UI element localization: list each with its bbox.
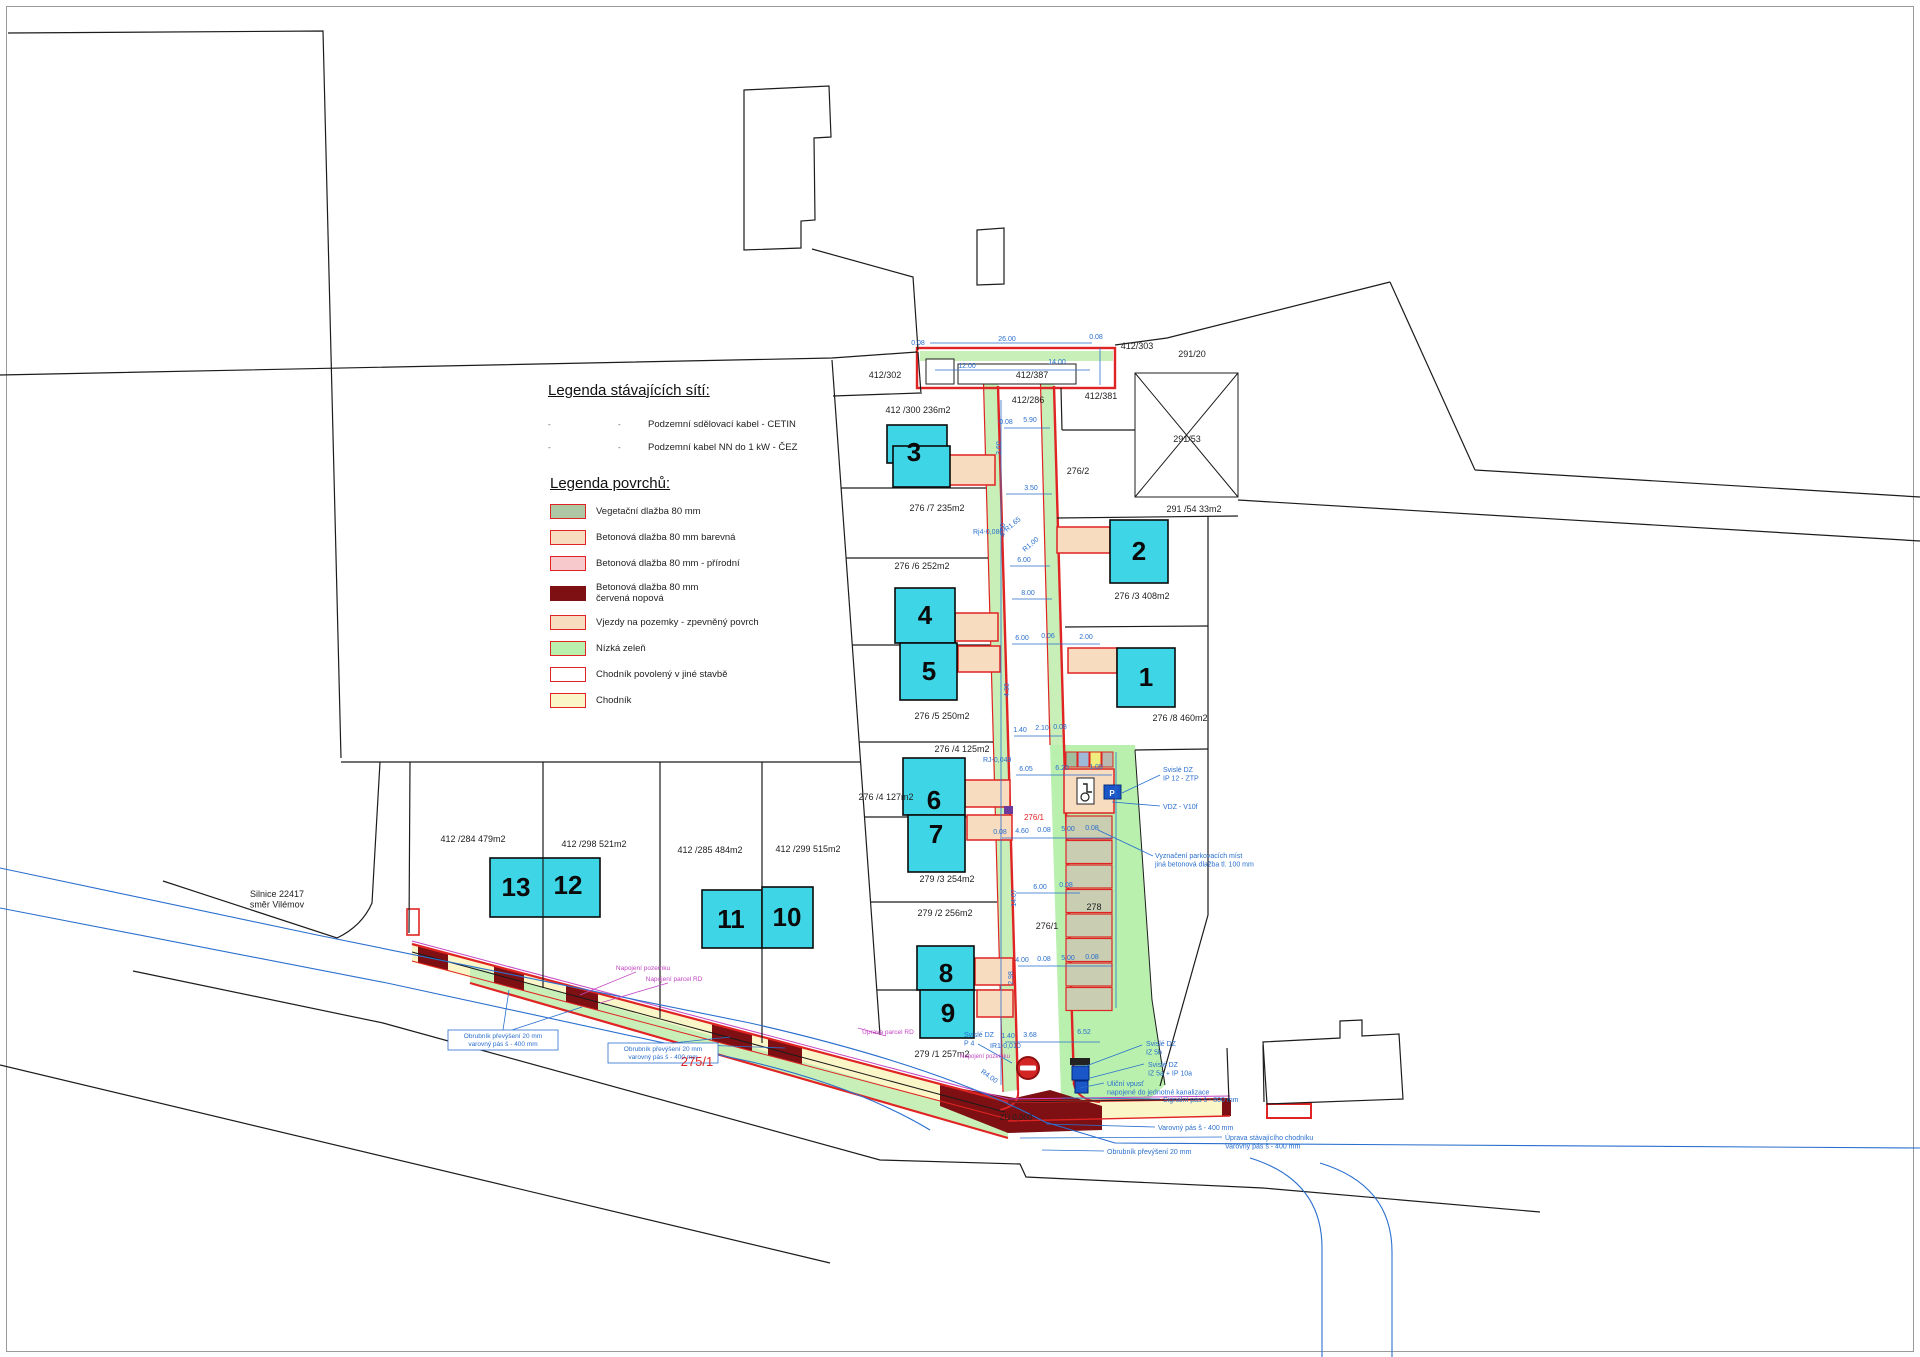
legend-surface-item: Betonová dlažba 80 mm - přírodní [548,556,838,571]
map-label: 0.08 [1037,827,1051,834]
map-label: 276 /5 250m2 [914,711,969,721]
inlet-grate-icon [1070,1058,1090,1065]
map-label: Obrubník převýšení 20 mmvarovný pás š - … [624,1046,702,1061]
map-label: 0.08 [1085,825,1099,832]
map-label: VDZ - V10f [1163,804,1198,811]
map-label: 2.98 [1008,971,1015,985]
building-number-6: 6 [927,785,941,815]
map-label: 0.08 [1037,956,1051,963]
map-label: ZÚ 0,000 [1000,1113,1033,1122]
legend-surface-item: Chodník [548,693,838,708]
map-label: 412 /298 521m2 [561,839,626,849]
legend-surface-label: Betonová dlažba 80 mm barevná [596,532,735,543]
map-label: Úprava parcel RD [862,1027,914,1036]
map-label: 3.60 [996,441,1003,455]
legend-surface-swatch [550,530,586,545]
map-label: 3.68 [1023,1032,1037,1039]
mini-parking-stall [1102,752,1113,767]
map-label: 6.00 [1017,557,1031,564]
map-label: 412/286 [1012,395,1045,405]
legend-surface-swatch [550,693,586,708]
map-label: 0.08 [1059,882,1073,889]
utility-box-icon [1004,806,1013,814]
map-label: P [1109,789,1115,798]
map-label: 2.10 [1035,725,1049,732]
legend-surfaces-list: Vegetační dlažba 80 mmBetonová dlažba 80… [548,504,838,708]
parking-stall [1066,963,1112,986]
map-label: 0.08 [999,419,1013,426]
legend-surface-label: Chodník [596,695,631,706]
map-label: RJ-0,049 [983,757,1012,764]
legend-surface-swatch [550,667,586,682]
legend-panel: Legenda stávajících sítí: --Podzemní sdě… [548,382,838,719]
map-label: 412/387 [1016,370,1049,380]
parking-stall [1066,865,1112,888]
building-number-9: 9 [941,998,955,1028]
map-label: 6.05 [1019,766,1033,773]
map-label: 276 /4 125m2 [934,744,989,754]
map-label: 4.60 [1015,828,1029,835]
map-label: 3.50 [1024,485,1038,492]
building-number-13: 13 [502,872,531,902]
legend-surface-label: Vegetační dlažba 80 mm [596,506,701,517]
legend-surface-swatch [550,504,586,519]
legend-surface-label: Chodník povolený v jiné stavbě [596,669,728,680]
building-number-12: 12 [554,870,583,900]
map-label: 412 /300 236m2 [885,405,950,415]
mini-parking-stall [1078,752,1089,767]
building-number-7: 7 [929,819,943,849]
map-label: 279 /2 256m2 [917,908,972,918]
street-inlet-icon [1072,1066,1089,1080]
map-label: Napojení pozemku [960,1054,1010,1060]
map-label: 0.08 [911,340,925,347]
map-label: Signální pás š - 800 mm [1163,1097,1239,1104]
map-label: Svislé DZIZ 5b [1146,1041,1177,1057]
map-label: Úprava stávajícího chodníkuVarovný pás š… [1225,1133,1313,1151]
legend-surface-label: Vjezdy na pozemky - zpevněný povrch [596,617,759,628]
map-label: 276/1 [1036,921,1059,931]
map-label: 1.40 [1001,1033,1015,1040]
map-label: 412/302 [869,370,902,380]
map-label: 291/20 [1178,349,1206,359]
map-label: 6.20 [1055,765,1069,772]
map-label: 276/2 [1067,466,1090,476]
map-label: 276 /3 408m2 [1114,591,1169,601]
site-plan-page: 32451678913121110 412/302412 /300 236m24… [0,0,1920,1357]
legend-surface-item: Betonová dlažba 80 mm barevná [548,530,838,545]
building-number-4: 4 [918,600,933,630]
building-number-2: 2 [1132,536,1146,566]
map-label: 0.08 [993,829,1007,836]
building-number-3: 3 [907,437,921,467]
map-label: 8.00 [1021,590,1035,597]
legend-surface-swatch [550,615,586,630]
map-label: 1.40 [1013,727,1027,734]
map-label: 412 /284 479m2 [440,834,505,844]
map-label: 4.30 [1004,683,1011,697]
legend-surface-label: Nízká zeleň [596,643,646,654]
legend-surface-swatch [550,556,586,571]
map-label: 14.07 [1011,889,1018,907]
map-label: 276/1 [1024,813,1045,822]
parking-stall [1066,841,1112,864]
map-label: 291 /54 33m2 [1166,504,1221,514]
legend-network-item: --Podzemní kabel NN do 1 kW - ČEZ [548,436,838,459]
map-label: 0.08 [1085,954,1099,961]
legend-surface-label: Betonová dlažba 80 mm - přírodní [596,558,740,569]
map-label: Silnice 22417směr Vilémov [250,889,305,910]
legend-surface-item: Betonová dlažba 80 mm červená nopová [548,582,838,604]
map-label: 278 [1086,902,1101,912]
map-label: 276 /4 127m2 [858,792,913,802]
legend-networks-list: --Podzemní sdělovací kabel - CETIN--Podz… [548,413,838,459]
map-label: 6.52 [1077,1029,1091,1036]
map-label: 12.00 [958,363,976,370]
map-label: 5.90 [1023,417,1037,424]
map-label: Vyznačení parkovacích místjiná betonová … [1154,853,1254,869]
site-plan-drawing: 32451678913121110 412/302412 /300 236m24… [0,0,1920,1357]
legend-surfaces-title: Legenda povrchů: [550,475,838,492]
legend-network-item: --Podzemní sdělovací kabel - CETIN [548,413,838,436]
map-label: 279 /3 254m2 [919,874,974,884]
map-label: Obrubník převýšení 20 mmvarovný pás š - … [464,1033,542,1048]
map-label: 14.00 [1048,359,1066,366]
building-number-8: 8 [939,958,953,988]
map-label: 276 /6 252m2 [894,561,949,571]
map-label: IR1-0,010 [990,1043,1021,1050]
map-label: Svislé DZIP 12 - ZTP [1163,767,1199,783]
map-label: 5.00 [1061,955,1075,962]
map-label: 1.05 [1089,764,1103,771]
map-label: 26.00 [998,336,1016,343]
map-label: 2.00 [1079,634,1093,641]
map-label: 6.00 [1033,884,1047,891]
building-number-10: 10 [773,902,802,932]
map-label: Obrubník převýšení 20 mm [1107,1149,1192,1156]
map-label: 412 /285 484m2 [677,845,742,855]
map-label: 4.00 [1015,957,1029,964]
building-number-11: 11 [717,904,745,934]
legend-surface-swatch [550,641,586,656]
map-label: 412/381 [1085,391,1118,401]
map-label: 6.00 [1015,635,1029,642]
legend-surface-swatch [550,586,586,601]
legend-network-label: Podzemní kabel NN do 1 kW - ČEZ [648,442,797,453]
building-3 [893,446,950,487]
legend-networks-title: Legenda stávajících sítí: [548,382,838,399]
legend-surface-label: Betonová dlažba 80 mm červená nopová [596,582,698,604]
building-number-1: 1 [1139,662,1153,692]
wheelchair-marking [1077,778,1094,804]
map-label: Svislé DZIZ 5a + IP 10a [1148,1062,1192,1078]
map-label: 276 /8 460m2 [1152,713,1207,723]
map-label: Napojení parcel RD [646,976,703,983]
map-label: Varovný pás š - 400 mm [1158,1125,1234,1132]
building-number-5: 5 [922,656,936,686]
map-label: 276 /7 235m2 [909,503,964,513]
parking-stall [1066,988,1112,1011]
legend-network-label: Podzemní sdělovací kabel - CETIN [648,419,796,430]
map-label: R4.00 [979,1069,998,1086]
map-label: 412/303 [1121,341,1154,351]
map-label: 5.00 [1061,826,1075,833]
map-label: 412 /299 515m2 [775,844,840,854]
map-label: 0.08 [1089,334,1103,341]
legend-surface-item: Chodník povolený v jiné stavbě [548,667,838,682]
legend-surface-item: Nízká zeleň [548,641,838,656]
map-label: 291/53 [1173,434,1201,444]
legend-surface-item: Vegetační dlažba 80 mm [548,504,838,519]
legend-surface-item: Vjezdy na pozemky - zpevněný povrch [548,615,838,630]
map-label: 0.06 [1041,633,1055,640]
map-label: Napojení pozemku [616,965,671,972]
parking-stall [1066,914,1112,937]
map-label: Rj4-0,080 [973,529,1003,536]
map-label: 0.08 [1053,724,1067,731]
